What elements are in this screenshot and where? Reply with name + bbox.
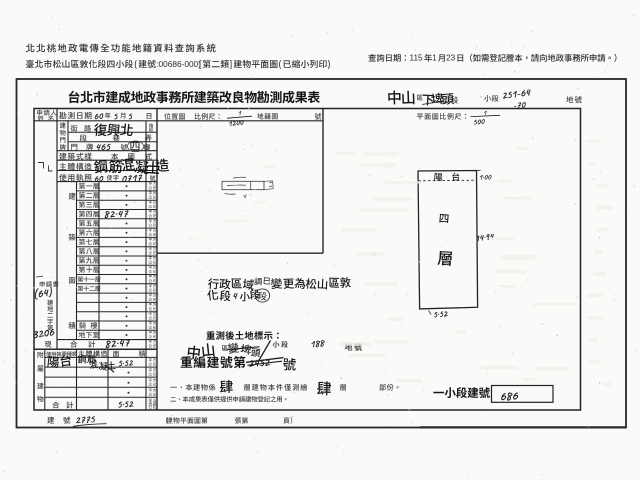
svg-text:23: 23 xyxy=(446,54,456,63)
svg-text:115: 115 xyxy=(410,54,423,63)
svg-text::00686-000): :00686-000) xyxy=(156,59,201,69)
svg-text:1: 1 xyxy=(432,54,437,63)
